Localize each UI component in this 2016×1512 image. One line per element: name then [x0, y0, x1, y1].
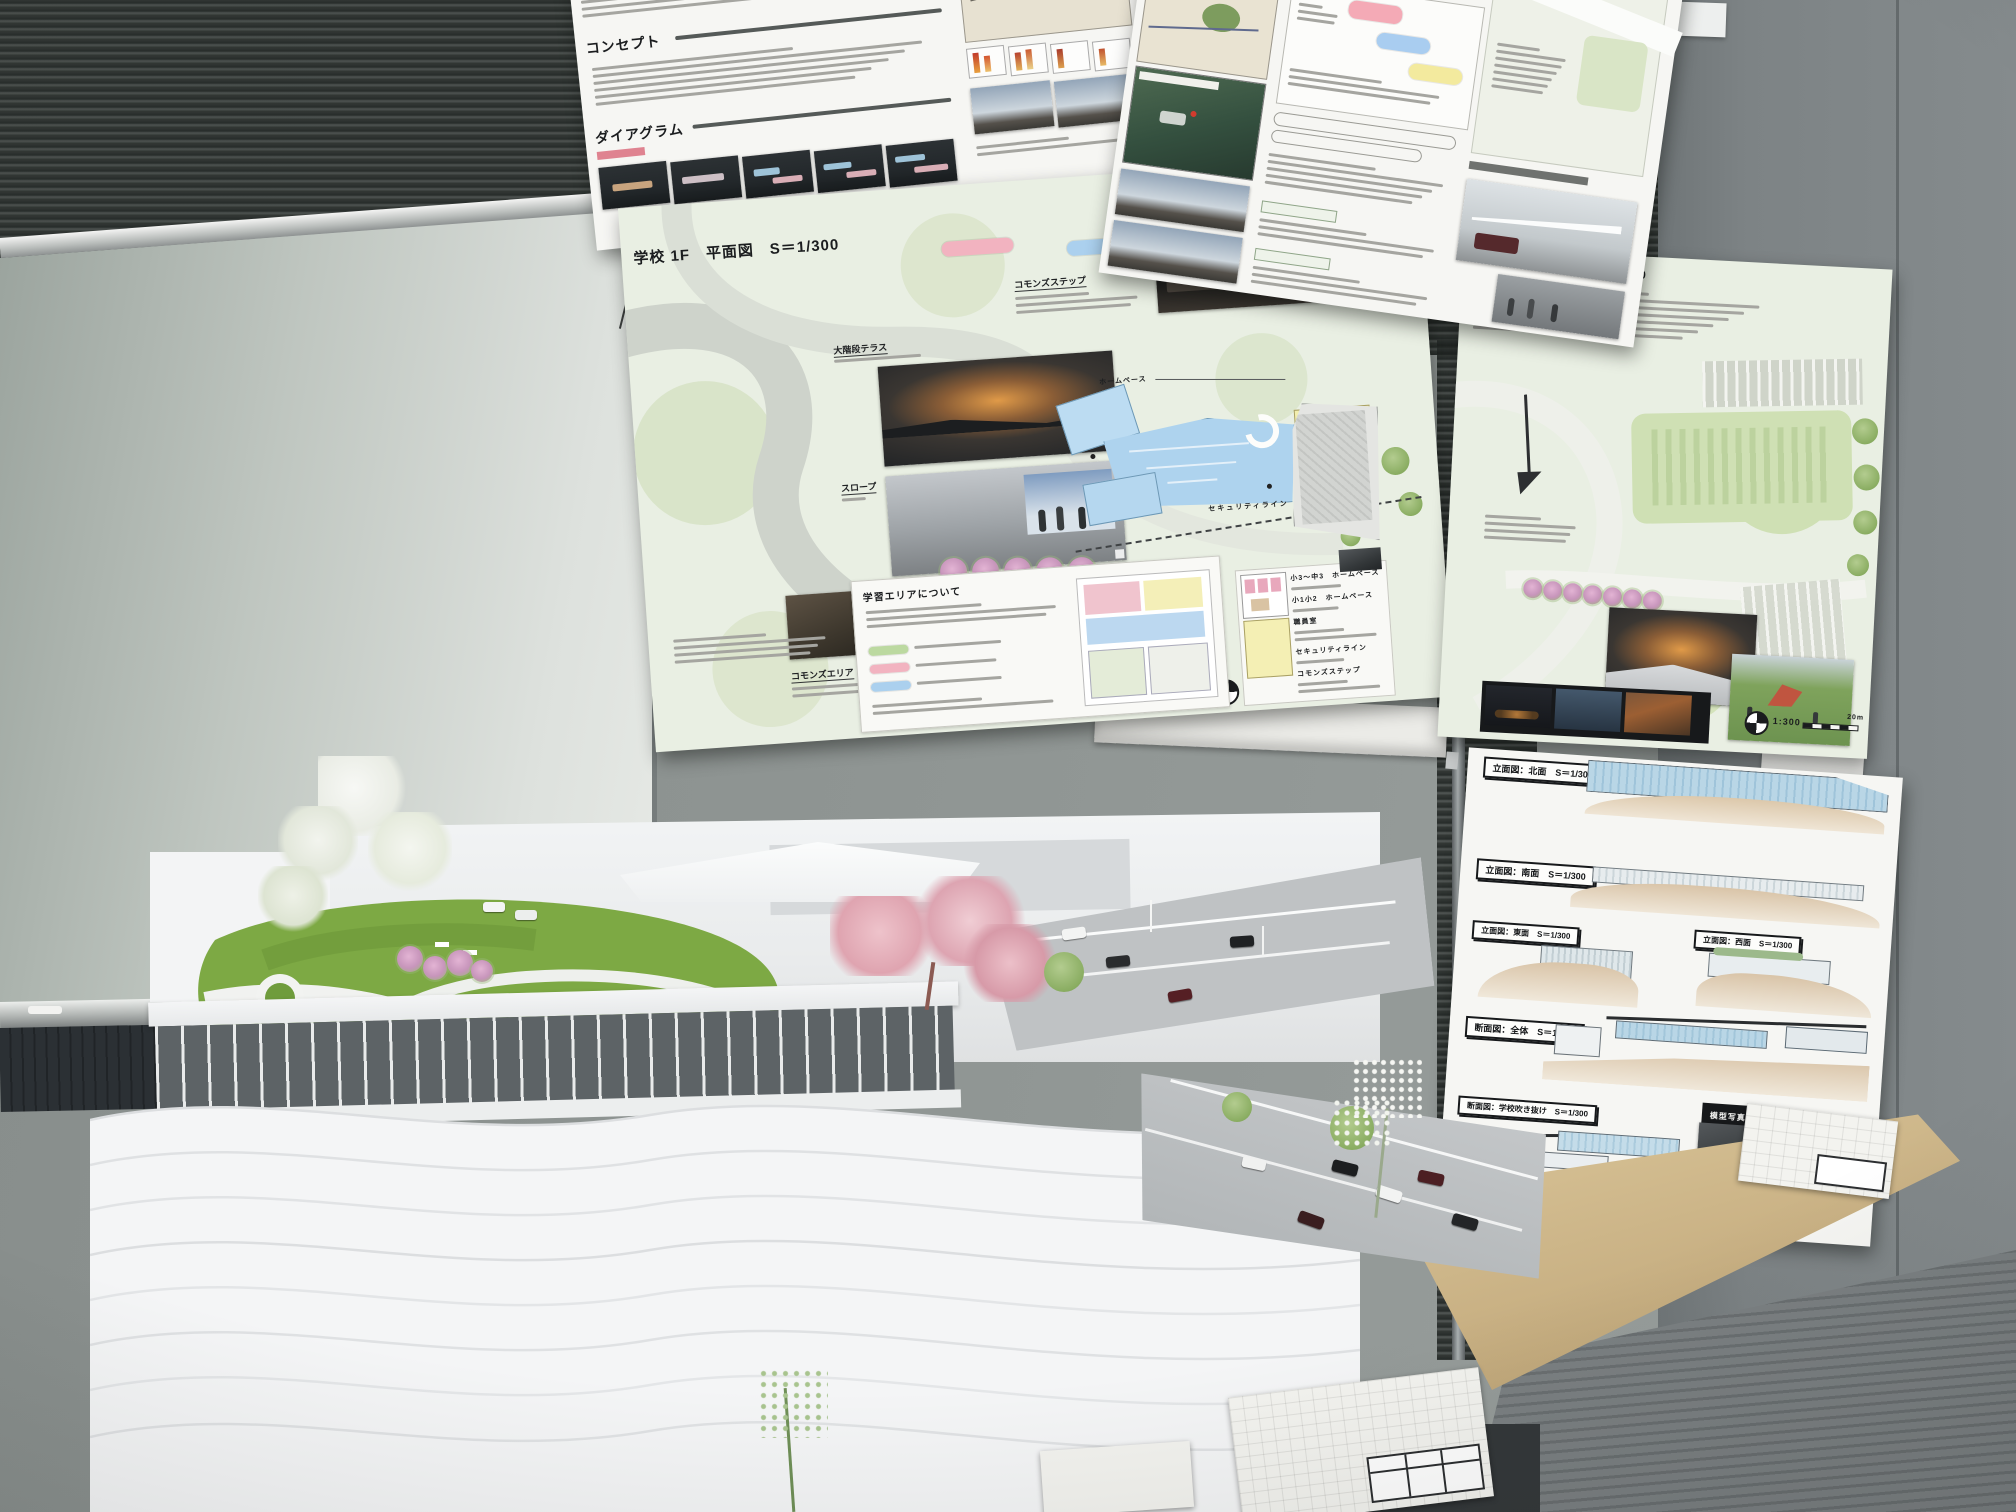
homebase-plan-label: ホームベース	[1099, 374, 1147, 387]
diagram-roof	[753, 167, 780, 177]
text-line	[914, 640, 1001, 649]
playground-photo	[1728, 654, 1854, 746]
text-line	[1297, 16, 1335, 24]
legend-chart	[1008, 43, 1049, 77]
elev-south-drawing	[1570, 855, 1883, 932]
section-stair	[1554, 1024, 1602, 1057]
diagram-roof	[772, 175, 802, 184]
canopy-render	[1456, 179, 1638, 284]
map-river	[1149, 26, 1259, 32]
model-photos-label: 模型写真	[1710, 1111, 1747, 1122]
night-view-photo	[1484, 685, 1552, 728]
area-diagram	[1076, 569, 1219, 706]
plan-wing-blue	[1082, 472, 1162, 526]
area2-chip	[869, 662, 910, 674]
puff	[258, 866, 328, 932]
site-scale-ratio: 1:300	[1772, 716, 1801, 727]
rooftop-field	[1631, 410, 1853, 524]
taped-drawing-sheet-small	[1040, 1441, 1194, 1512]
plan-tree	[1381, 446, 1411, 476]
aerial-marker	[1190, 111, 1197, 118]
diagram-room-yellow	[1143, 577, 1203, 611]
divider	[692, 98, 951, 129]
autumn-photo	[1624, 692, 1692, 735]
green-sprig-plant	[742, 1368, 842, 1512]
text-line	[917, 676, 1002, 685]
plan-detail	[1167, 478, 1217, 483]
map-road	[970, 0, 1087, 1]
diagram-thumb	[742, 150, 814, 199]
elev-north-label: 立面図：北面 S＝1/300	[1483, 756, 1603, 785]
legend-bar	[1025, 49, 1033, 70]
annex-hatch	[1295, 410, 1373, 525]
pink-room	[1257, 578, 1268, 593]
annex-site-drawing	[1285, 398, 1387, 546]
legend-bar	[1099, 48, 1107, 66]
model-tree	[1044, 952, 1084, 992]
figure	[1526, 298, 1535, 319]
model-car	[515, 910, 537, 920]
dusk-mountain-photo	[1554, 689, 1622, 732]
plan-tree	[1398, 491, 1424, 517]
diagram-plan-crop	[1088, 647, 1147, 699]
title-block-line	[1404, 1455, 1411, 1497]
text-line	[867, 613, 1047, 629]
figure	[1550, 304, 1558, 323]
diagram-thumb	[670, 155, 742, 204]
legend-chart	[966, 45, 1007, 79]
field-lanes	[1651, 426, 1832, 505]
model-car	[1230, 935, 1255, 948]
model-car	[483, 902, 505, 912]
zone-row-labels	[1296, 0, 1341, 29]
site-scale-bar: 20m	[1802, 720, 1856, 731]
title-block-line	[1370, 1459, 1479, 1474]
model-sakura	[397, 946, 423, 972]
scale-20: 20m	[1847, 714, 1864, 722]
bus	[1474, 232, 1520, 254]
text-line	[1299, 3, 1324, 9]
diagram-roof	[612, 180, 653, 191]
babys-breath-plant	[1322, 1048, 1452, 1228]
leader-dot	[1090, 454, 1095, 459]
diagram-roof	[823, 162, 851, 171]
diagram-thumb	[598, 161, 670, 210]
white-puff-trees	[258, 756, 478, 936]
figure	[1507, 298, 1515, 317]
model-sakura	[423, 956, 447, 980]
studio-photo-scene: コンセプト ダイアグラム	[0, 0, 2016, 1512]
model-tree	[1222, 1092, 1252, 1122]
text-line	[915, 658, 996, 667]
text-line	[1296, 658, 1344, 664]
area1-chip	[868, 644, 909, 656]
marker-on-tray	[28, 1006, 62, 1014]
diagram-room-blue	[1086, 611, 1206, 645]
light-pole	[1262, 926, 1264, 956]
plan-room-labels	[1491, 39, 1572, 102]
plan-detail	[1146, 461, 1236, 469]
model-sakura	[447, 950, 473, 976]
diagram-thumb	[886, 139, 958, 188]
commons-step-note-title: コモンズステップ	[1014, 273, 1087, 292]
white-blooms	[1332, 1098, 1392, 1148]
pink-room	[1270, 577, 1281, 592]
model-sakura	[471, 960, 493, 982]
diagram-roof	[914, 163, 948, 173]
section-band-blue	[1615, 1020, 1768, 1049]
text-line	[1298, 680, 1348, 686]
diagram-roof	[895, 154, 925, 163]
mini-dark-photo	[1339, 547, 1382, 572]
mini-plan-yellow	[1243, 618, 1293, 679]
puff	[368, 812, 452, 892]
diagram-plan-crop	[1148, 642, 1211, 694]
plan-detail	[1129, 442, 1249, 452]
diagram-roof	[846, 169, 876, 178]
legend-bar	[1056, 49, 1064, 69]
plan-green	[1576, 35, 1649, 113]
aerial-site-patch	[1159, 110, 1186, 126]
city-lights	[1495, 709, 1539, 719]
zone-tag-blue	[1376, 32, 1432, 55]
text-line	[842, 497, 867, 502]
figure	[1038, 510, 1047, 532]
section-band	[1785, 1026, 1868, 1054]
text-line	[1293, 606, 1339, 612]
title-block	[1366, 1444, 1485, 1504]
people-photo	[1492, 274, 1625, 339]
legend-bar	[1015, 52, 1023, 71]
section-atrium-label: 断面図：学校吹き抜け S＝1/300	[1457, 1096, 1597, 1125]
valley-photo	[1108, 220, 1243, 284]
school-floor-plan: セキュリティライン ホームベース	[1059, 361, 1438, 586]
model-big-pink-tree	[810, 876, 1070, 1016]
zone-tag-pink	[1347, 0, 1403, 25]
light-pole	[1150, 900, 1152, 932]
legend-bar	[984, 55, 992, 72]
leader-line	[1155, 379, 1285, 380]
tan-room	[1251, 598, 1270, 611]
flow-arrow	[1490, 389, 1556, 502]
parking-stalls	[1702, 359, 1863, 408]
diagram-thumb	[814, 144, 886, 193]
concept-heading: コンセプト	[585, 31, 662, 59]
slide	[1768, 684, 1803, 708]
legend-bar	[972, 53, 980, 74]
mini-plan-pink	[1240, 572, 1289, 619]
plan-fragment	[1471, 0, 1672, 177]
text-line	[1295, 633, 1377, 642]
aerial-photo	[1122, 65, 1266, 180]
homebase-panel: 小3～中3 ホームベース 小1小2 ホームベース 職員室 セキュリティライン コ…	[1235, 560, 1396, 706]
learning-area-panel: 学習エリアについて	[851, 555, 1231, 732]
legend-chart	[1050, 40, 1091, 74]
aerial-caption	[1139, 71, 1219, 90]
diagram-heading: ダイアグラム	[594, 119, 684, 148]
diagram-room-pink	[1083, 581, 1141, 615]
landscape-photo	[970, 80, 1054, 134]
text-line	[1485, 515, 1541, 521]
road-line	[1051, 941, 1389, 980]
diagram-tag	[597, 147, 646, 160]
pink-room	[1244, 579, 1255, 594]
diagram-roof	[682, 173, 725, 184]
text-line	[1484, 529, 1570, 537]
area3-chip	[871, 680, 912, 692]
zoning-table	[1276, 0, 1485, 130]
text-line	[1294, 628, 1344, 634]
text-line	[834, 354, 921, 363]
text-line	[1291, 584, 1341, 590]
location-map	[950, 0, 1133, 43]
leaves	[758, 1368, 828, 1438]
board-clip	[1445, 752, 1458, 770]
text-line	[1298, 685, 1380, 694]
text-line	[873, 699, 1053, 715]
title-block-line	[1440, 1450, 1447, 1492]
text-line	[1484, 536, 1566, 543]
text-line	[1485, 522, 1576, 530]
title-block	[1814, 1154, 1887, 1192]
